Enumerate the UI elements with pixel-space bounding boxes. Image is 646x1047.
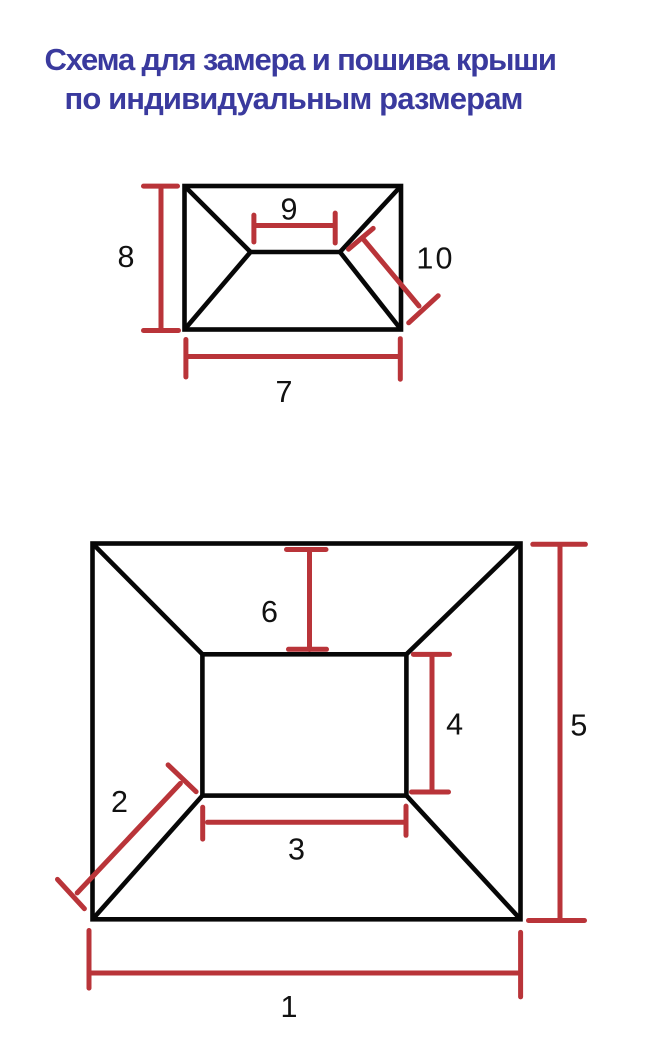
svg-text:9: 9	[281, 193, 298, 227]
svg-text:10: 10	[416, 242, 454, 276]
svg-text:7: 7	[276, 375, 293, 409]
svg-text:1: 1	[281, 990, 298, 1024]
svg-text:8: 8	[118, 240, 135, 274]
svg-text:5: 5	[570, 709, 587, 743]
svg-text:Схема для замера и пошива крыш: Схема для замера и пошива крыши	[44, 42, 555, 77]
svg-text:2: 2	[111, 785, 128, 819]
svg-text:6: 6	[261, 595, 278, 629]
svg-text:по индивидуальным размерам: по индивидуальным размерам	[64, 81, 522, 116]
svg-text:3: 3	[288, 833, 305, 867]
svg-text:4: 4	[446, 708, 463, 742]
